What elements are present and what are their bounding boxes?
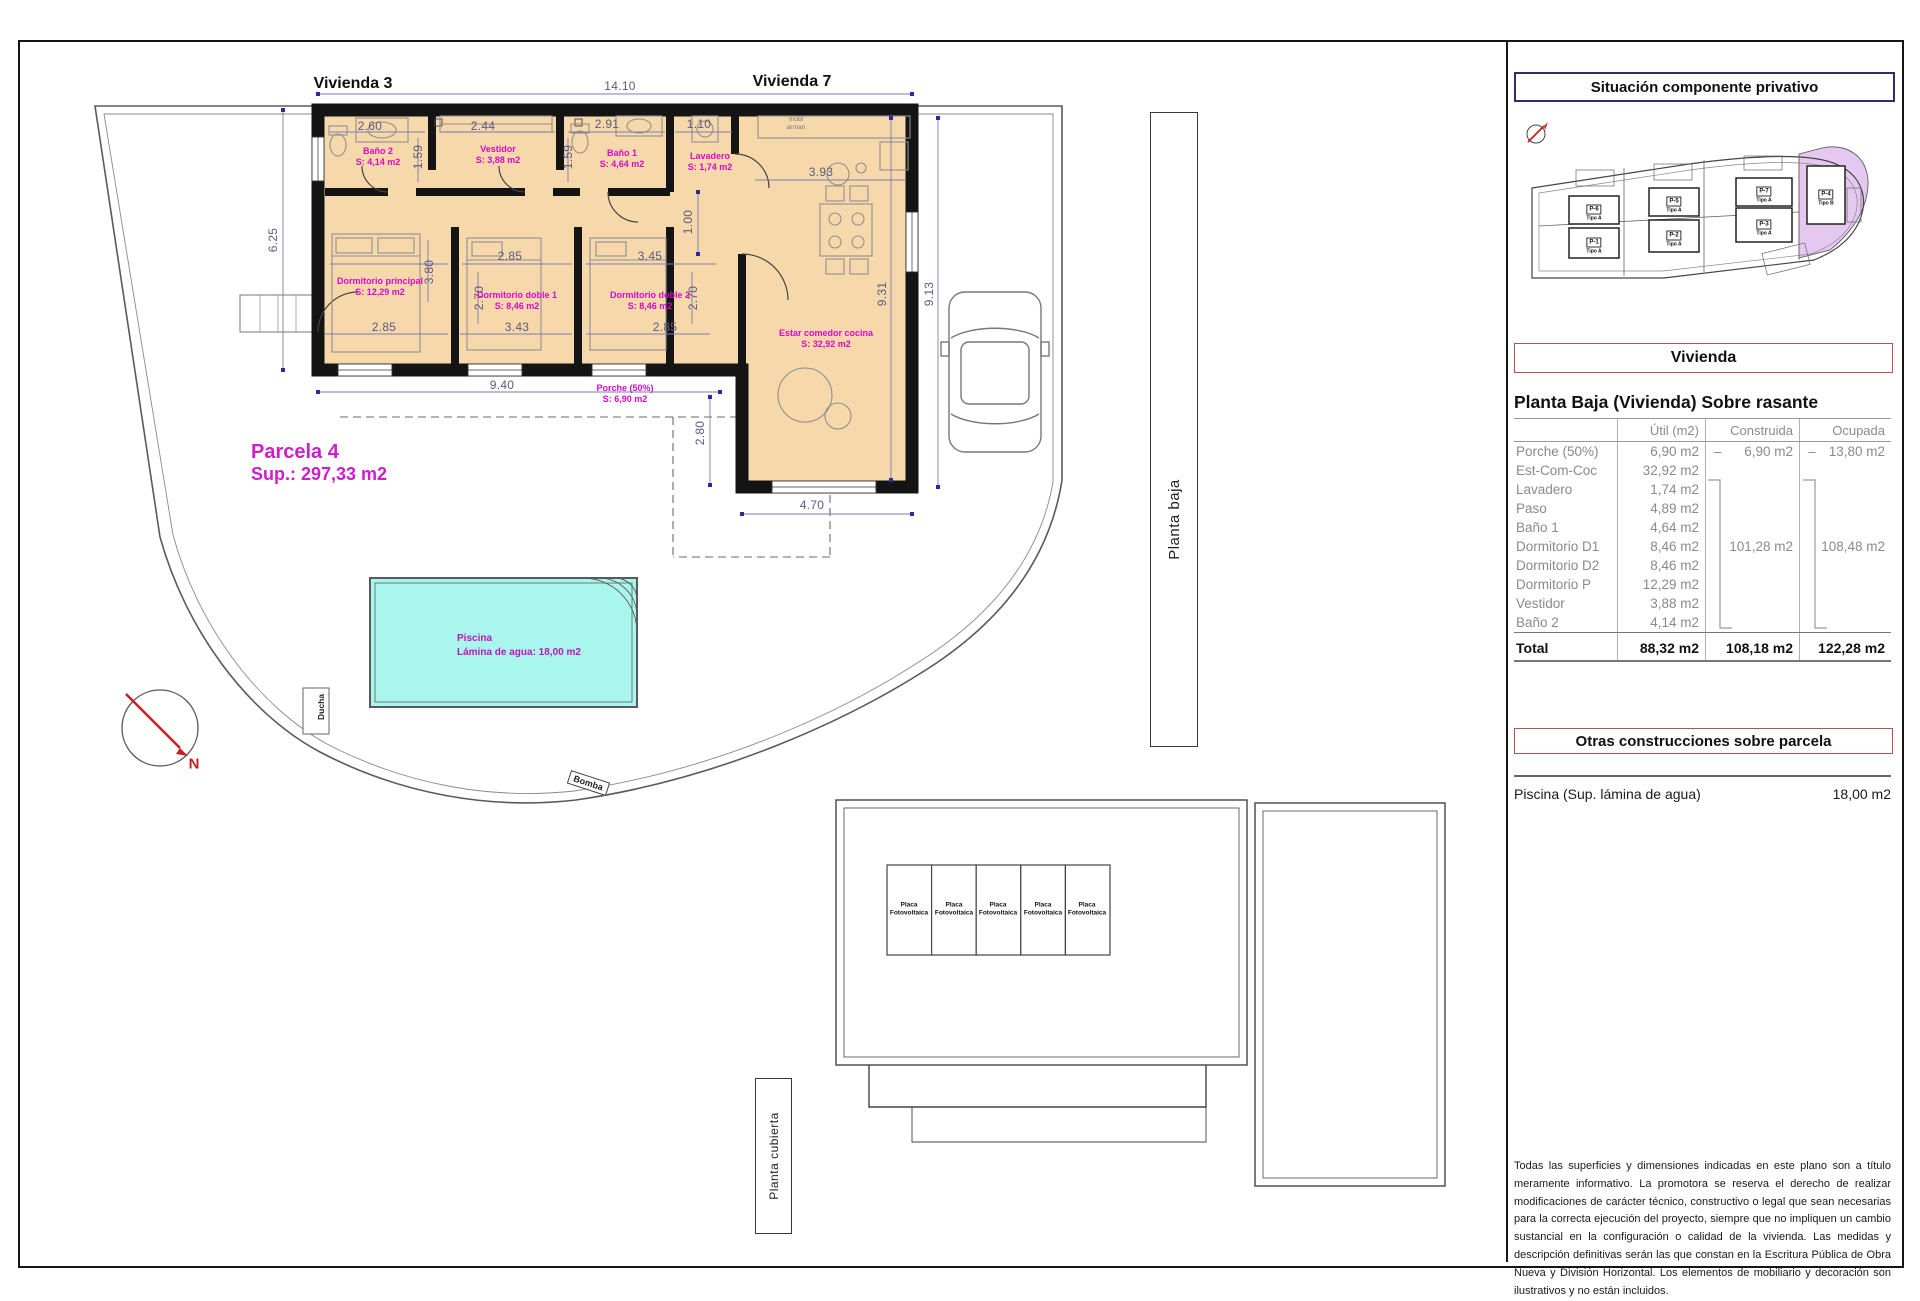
table-row: Baño 1 4,64 m2 bbox=[1514, 518, 1891, 537]
table-row: Dormitorio D2 8,46 m2 bbox=[1514, 556, 1891, 575]
table-total-row: Total 88,32 m2 108,18 m2 122,28 m2 bbox=[1514, 632, 1891, 662]
plot-p2: P-2Tipo A bbox=[1666, 224, 1681, 249]
sidebar: Situación componente privativo bbox=[1506, 42, 1902, 1262]
north-arrow-label: N bbox=[189, 756, 200, 773]
planta-cubierta-box: Planta cubierta bbox=[755, 1078, 792, 1234]
table-row: Baño 2 4,14 m2 bbox=[1514, 613, 1891, 632]
planta-baja-heading: Planta Baja (Vivienda) Sobre rasante bbox=[1514, 392, 1818, 413]
plot-p4: P-4Tipo B bbox=[1818, 183, 1833, 208]
drawing-frame: Vivienda 3 Vivienda 7 14.10 6.25 2.60 1.… bbox=[18, 40, 1904, 1268]
table-row: Paso 4,89 m2 bbox=[1514, 499, 1891, 518]
dim-2-85-a: 2.85 bbox=[498, 249, 523, 263]
room-dormitorio-doble1: Dormitorio doble 1S: 8,46 m2 bbox=[477, 290, 557, 313]
dim-2-85-c: 2.85 bbox=[653, 320, 678, 334]
room-porche: Porche (50%)S: 6,90 m2 bbox=[596, 383, 653, 406]
planta-baja-box: Planta baja bbox=[1150, 112, 1198, 747]
room-estar-comedor-cocina: Estar comedor cocinaS: 32,92 m2 bbox=[779, 328, 873, 351]
dim-6-25: 6.25 bbox=[266, 228, 280, 253]
dim-1-59-a: 1.59 bbox=[411, 145, 425, 170]
dim-3-45: 3.45 bbox=[638, 249, 663, 263]
vivienda-7-label: Vivienda 7 bbox=[753, 73, 832, 91]
otras-title-box: Otras construcciones sobre parcela bbox=[1514, 728, 1893, 754]
vivienda-3-label: Vivienda 3 bbox=[314, 75, 393, 93]
solar-panel-label: PlacaFotovoltaica bbox=[1068, 902, 1106, 919]
dim-1-00: 1.00 bbox=[681, 210, 695, 235]
parcela-label: Parcela 4 Sup.: 297,33 m2 bbox=[251, 440, 387, 486]
dim-1-10: 1.10 bbox=[687, 117, 712, 131]
room-vestidor: VestidorS: 3,88 m2 bbox=[476, 144, 521, 167]
solar-panel-label: PlacaFotovoltaica bbox=[1024, 902, 1062, 919]
plot-p7: P-7Tipo A bbox=[1756, 180, 1771, 205]
dim-3-80: 3.80 bbox=[422, 260, 436, 285]
dim-9-13: 9.13 bbox=[922, 282, 936, 307]
closet-note: moblarmari bbox=[787, 116, 805, 132]
room-dormitorio-doble2: Dormitorio doble 2S: 8,46 m2 bbox=[610, 290, 690, 313]
solar-panel-label: PlacaFotovoltaica bbox=[890, 902, 928, 919]
dim-1-59-b: 1.59 bbox=[561, 145, 575, 170]
dim-2-91: 2.91 bbox=[595, 117, 620, 131]
dim-9-31: 9.31 bbox=[875, 282, 889, 307]
pool-label: Piscina Lámina de agua: 18,00 m2 bbox=[457, 632, 581, 660]
site-location-map: P-6Tipo A P-1Tipo A P-5Tipo A P-2Tipo A … bbox=[1514, 108, 1891, 298]
room-lavadero: LavaderoS: 1,74 m2 bbox=[688, 151, 733, 174]
room-dormitorio-principal: Dormitorio principalS: 12,29 m2 bbox=[337, 276, 423, 299]
solar-panel-label: PlacaFotovoltaica bbox=[979, 902, 1017, 919]
dim-9-40: 9.40 bbox=[490, 378, 515, 392]
solar-panel-label: PlacaFotovoltaica bbox=[935, 902, 973, 919]
dim-2-80: 2.80 bbox=[693, 421, 707, 446]
situacion-title-box: Situación componente privativo bbox=[1514, 72, 1895, 102]
vivienda-title-box: Vivienda bbox=[1514, 343, 1893, 373]
piscina-row: Piscina (Sup. lámina de agua) 18,00 m2 bbox=[1514, 775, 1891, 802]
table-row: Dormitorio D1 8,46 m2 101,28 m2 108,48 m… bbox=[1514, 537, 1891, 556]
room-banyo1: Baño 1S: 4,64 m2 bbox=[600, 148, 645, 171]
plot-p3: P-3Tipo A bbox=[1756, 213, 1771, 238]
table-row: Dormitorio P 12,29 m2 bbox=[1514, 575, 1891, 594]
table-row: Vestidor 3,88 m2 bbox=[1514, 594, 1891, 613]
dim-4-70: 4.70 bbox=[800, 498, 825, 512]
table-row: Est-Com-Coc 32,92 m2 bbox=[1514, 461, 1891, 480]
plot-p6: P-6Tipo A bbox=[1586, 198, 1601, 223]
site-map-linework bbox=[1514, 108, 1891, 298]
dim-14-10: 14.10 bbox=[604, 79, 636, 93]
dim-2-44: 2.44 bbox=[471, 119, 496, 133]
ducha-label: Ducha bbox=[316, 694, 326, 720]
dim-3-93: 3.93 bbox=[809, 165, 834, 179]
dim-2-60: 2.60 bbox=[358, 119, 383, 133]
dim-2-85-b: 2.85 bbox=[372, 320, 397, 334]
table-header: Útil (m2) Construida (m2) Ocupada (m2) bbox=[1514, 418, 1891, 442]
table-row: Porche (50%) 6,90 m2 –6,90 m2 –13,80 m2 bbox=[1514, 442, 1891, 461]
plot-p5: P-5Tipo A bbox=[1666, 190, 1681, 215]
disclaimer-text: Todas las superficies y dimensiones indi… bbox=[1514, 1158, 1891, 1301]
plot-p1: P-1Tipo A bbox=[1586, 231, 1601, 256]
areas-table: Útil (m2) Construida (m2) Ocupada (m2) P… bbox=[1514, 418, 1891, 662]
dim-3-43: 3.43 bbox=[505, 320, 530, 334]
site-plan-area: Vivienda 3 Vivienda 7 14.10 6.25 2.60 1.… bbox=[20, 42, 1506, 1262]
table-row: Lavadero 1,74 m2 bbox=[1514, 480, 1891, 499]
room-banyo2: Baño 2S: 4,14 m2 bbox=[356, 146, 401, 169]
